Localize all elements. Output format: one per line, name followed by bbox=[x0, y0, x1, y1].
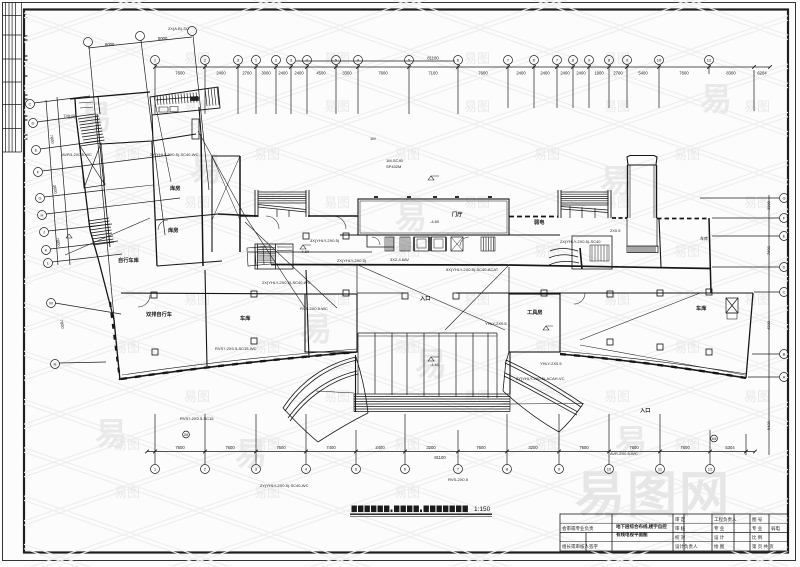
svg-text:比 例: 比 例 bbox=[752, 534, 763, 541]
svg-text:易图: 易图 bbox=[114, 485, 140, 500]
svg-text:2Y(YHLY-2X0.5)-SC40-WC: 2Y(YHLY-2X0.5)-SC40-WC bbox=[150, 152, 199, 157]
svg-text:工具房: 工具房 bbox=[527, 308, 543, 316]
svg-text:易图: 易图 bbox=[464, 292, 490, 307]
svg-text:会审或专业负责: 会审或专业负责 bbox=[562, 525, 594, 532]
svg-text:卫生间: 卫生间 bbox=[63, 113, 75, 119]
svg-text:D: D bbox=[783, 265, 786, 270]
svg-text:3300: 3300 bbox=[342, 71, 352, 76]
svg-text:8000: 8000 bbox=[105, 42, 115, 47]
svg-text:AVR-2X0.5-WC: AVR-2X0.5-WC bbox=[610, 451, 638, 456]
svg-text:易图: 易图 bbox=[394, 485, 420, 500]
svg-text:设计负责人: 设计负责人 bbox=[675, 543, 698, 550]
svg-text:YHLY-2X0.5: YHLY-2X0.5 bbox=[540, 361, 562, 366]
svg-text:3200: 3200 bbox=[766, 200, 771, 210]
svg-text:8: 8 bbox=[506, 467, 509, 472]
svg-text:7600: 7600 bbox=[579, 445, 589, 450]
svg-text:易图: 易图 bbox=[674, 147, 700, 162]
svg-text:有线电视平面图: 有线电视平面图 bbox=[616, 531, 648, 538]
svg-text:E: E bbox=[35, 148, 38, 153]
svg-text:7600: 7600 bbox=[276, 445, 286, 450]
svg-text:4: 4 bbox=[357, 58, 360, 63]
svg-text:3X(YHLY-2X0.5): 3X(YHLY-2X0.5) bbox=[310, 238, 340, 243]
svg-text:1M-SC40: 1M-SC40 bbox=[386, 158, 404, 163]
svg-text:易: 易 bbox=[235, 436, 267, 472]
svg-text:4200: 4200 bbox=[766, 320, 771, 330]
svg-text:易图网: 易图网 bbox=[575, 467, 731, 523]
svg-text:D: D bbox=[32, 121, 35, 126]
svg-text:3000: 3000 bbox=[261, 71, 271, 76]
svg-text:7600: 7600 bbox=[378, 71, 388, 76]
svg-text:2400: 2400 bbox=[216, 71, 226, 76]
svg-text:A: A bbox=[783, 375, 786, 380]
svg-text:易: 易 bbox=[80, 99, 112, 135]
svg-text:图 号: 图 号 bbox=[752, 517, 763, 523]
svg-text:8300: 8300 bbox=[726, 71, 736, 76]
svg-text:7: 7 bbox=[556, 58, 559, 63]
svg-text:易图: 易图 bbox=[254, 147, 280, 162]
svg-text:易图: 易图 bbox=[184, 389, 210, 404]
svg-text:易图: 易图 bbox=[114, 244, 140, 259]
svg-text:10: 10 bbox=[657, 58, 662, 63]
svg-text:2X(A.B)-SC: 2X(A.B)-SC bbox=[168, 26, 189, 31]
svg-text:2: 2 bbox=[275, 58, 278, 63]
svg-text:组长或审核人签字: 组长或审核人签字 bbox=[562, 543, 598, 550]
svg-text:易图: 易图 bbox=[324, 195, 350, 210]
svg-text:C: C bbox=[29, 102, 32, 107]
svg-text:易图: 易图 bbox=[324, 99, 350, 114]
svg-text:4M: 4M bbox=[712, 437, 717, 441]
svg-text:2400: 2400 bbox=[278, 71, 288, 76]
svg-text:B: B bbox=[783, 352, 786, 357]
svg-text:审 定: 审 定 bbox=[675, 516, 686, 523]
svg-text:易图: 易图 bbox=[114, 147, 140, 162]
svg-text:弱电: 弱电 bbox=[534, 218, 545, 226]
svg-text:7100: 7100 bbox=[428, 71, 438, 76]
svg-text:6: 6 bbox=[404, 467, 407, 472]
svg-text:易图: 易图 bbox=[674, 340, 700, 355]
svg-text:G: G bbox=[782, 196, 785, 201]
svg-text:2X(YHLY-2X0.5)-SC40: 2X(YHLY-2X0.5)-SC40 bbox=[560, 239, 601, 244]
svg-text:1900: 1900 bbox=[594, 71, 604, 76]
svg-text:易图: 易图 bbox=[534, 340, 560, 355]
svg-text:易图: 易图 bbox=[534, 437, 560, 452]
svg-text:2400: 2400 bbox=[540, 71, 550, 76]
svg-text:7400: 7400 bbox=[326, 445, 336, 450]
svg-text:2700: 2700 bbox=[613, 71, 623, 76]
svg-text:5400: 5400 bbox=[766, 420, 771, 430]
svg-text:AVR3-2X0.5-WC: AVR3-2X0.5-WC bbox=[62, 152, 92, 157]
svg-text:易: 易 bbox=[95, 416, 127, 452]
svg-text:H: H bbox=[41, 213, 44, 218]
svg-text:7600: 7600 bbox=[679, 71, 689, 76]
svg-text:3X2-4.6AV: 3X2-4.6AV bbox=[390, 257, 409, 262]
svg-text:2700: 2700 bbox=[242, 71, 252, 76]
svg-text:2M: 2M bbox=[184, 433, 189, 437]
svg-text:车库: 车库 bbox=[700, 235, 708, 241]
svg-text:2X(YHLY-2X0.5)-SC40-WC: 2X(YHLY-2X0.5)-SC40-WC bbox=[262, 280, 311, 285]
svg-text:-4.60: -4.60 bbox=[430, 362, 440, 367]
svg-text:7800: 7800 bbox=[49, 134, 56, 144]
svg-text:2400: 2400 bbox=[294, 71, 304, 76]
svg-text:RVS?-2X0.5-SC15-WC: RVS?-2X0.5-SC15-WC bbox=[215, 346, 257, 351]
svg-text:弱电: 弱电 bbox=[771, 525, 780, 532]
svg-text:8000: 8000 bbox=[158, 36, 168, 41]
svg-text:1:150: 1:150 bbox=[474, 506, 491, 513]
svg-text:易图: 易图 bbox=[604, 99, 630, 114]
svg-text:J: J bbox=[43, 230, 45, 235]
svg-text:6: 6 bbox=[457, 58, 460, 63]
svg-text:E: E bbox=[783, 234, 786, 239]
svg-text:2Y(YHLY-2X0.5)-SC40-WC: 2Y(YHLY-2X0.5)-SC40-WC bbox=[260, 483, 309, 488]
svg-text:3200: 3200 bbox=[426, 445, 436, 450]
svg-text:5: 5 bbox=[408, 58, 411, 63]
svg-text:7600: 7600 bbox=[175, 445, 185, 450]
svg-text:10: 10 bbox=[607, 467, 612, 472]
svg-text:7600: 7600 bbox=[478, 71, 488, 76]
svg-text:C: C bbox=[783, 290, 786, 295]
svg-text:5304: 5304 bbox=[725, 445, 735, 450]
svg-text:2400: 2400 bbox=[560, 71, 570, 76]
svg-text:自行车库: 自行车库 bbox=[118, 256, 140, 264]
svg-text:车库: 车库 bbox=[240, 314, 251, 322]
svg-text:2400: 2400 bbox=[576, 71, 586, 76]
svg-text:2Y(YHLY-2X0.5)-ACAH-VC: 2Y(YHLY-2X0.5)-ACAH-VC bbox=[516, 376, 565, 381]
svg-text:库房: 库房 bbox=[170, 184, 180, 192]
svg-text:RVS-2X0.5: RVS-2X0.5 bbox=[448, 477, 469, 482]
svg-text:-4.80: -4.80 bbox=[300, 249, 310, 254]
svg-text:M: M bbox=[49, 301, 52, 306]
svg-text:7600: 7600 bbox=[476, 445, 486, 450]
svg-text:5X(YHLY-2X0.5)-SC40-ACAT: 5X(YHLY-2X0.5)-SC40-ACAT bbox=[446, 267, 499, 272]
svg-text:易图: 易图 bbox=[394, 437, 420, 452]
svg-text:7: 7 bbox=[507, 58, 510, 63]
svg-text:RVS?-2X0.5-SC15: RVS?-2X0.5-SC15 bbox=[180, 416, 214, 421]
svg-text:专 业: 专 业 bbox=[752, 525, 763, 532]
svg-text:审 核: 审 核 bbox=[675, 525, 686, 532]
svg-text:门厅: 门厅 bbox=[452, 210, 463, 218]
svg-text:易图: 易图 bbox=[744, 389, 770, 404]
svg-text:入口: 入口 bbox=[419, 295, 430, 302]
svg-text:SP432M: SP432M bbox=[386, 164, 401, 169]
svg-text:G: G bbox=[38, 196, 41, 201]
svg-text:易: 易 bbox=[395, 199, 427, 235]
svg-text:RVS-2X0.5-WC: RVS-2X0.5-WC bbox=[300, 306, 328, 311]
svg-text:绘 图: 绘 图 bbox=[714, 543, 725, 550]
svg-text:K: K bbox=[45, 248, 48, 253]
svg-text:库房: 库房 bbox=[168, 226, 178, 234]
svg-text:易图: 易图 bbox=[464, 51, 490, 66]
svg-text:YHLY-2X0.5: YHLY-2X0.5 bbox=[485, 321, 507, 326]
svg-text:易图: 易图 bbox=[184, 195, 210, 210]
svg-text:4500: 4500 bbox=[316, 71, 326, 76]
svg-text:地下层综合布线,楼宇自控: 地下层综合布线,楼宇自控 bbox=[616, 523, 667, 530]
svg-text:车库: 车库 bbox=[696, 304, 707, 312]
svg-text:6204: 6204 bbox=[757, 71, 767, 76]
svg-text:第 页 共 页: 第 页 共 页 bbox=[752, 543, 774, 550]
svg-text:专 业: 专 业 bbox=[714, 525, 725, 532]
svg-text:易: 易 bbox=[700, 81, 732, 117]
svg-text:易图: 易图 bbox=[324, 389, 350, 404]
svg-text:入口: 入口 bbox=[639, 407, 650, 414]
svg-text:易图: 易图 bbox=[744, 99, 770, 114]
svg-text:工程负责人: 工程负责人 bbox=[714, 516, 737, 523]
svg-text:1: 1 bbox=[154, 467, 157, 472]
svg-text:易图: 易图 bbox=[464, 195, 490, 210]
svg-text:2: 2 bbox=[204, 467, 207, 472]
svg-text:4: 4 bbox=[306, 58, 309, 63]
svg-text:2400: 2400 bbox=[516, 71, 526, 76]
svg-text:7600: 7600 bbox=[680, 445, 690, 450]
svg-text:易图: 易图 bbox=[534, 147, 560, 162]
svg-text:易图: 易图 bbox=[674, 244, 700, 259]
svg-text:7600: 7600 bbox=[175, 71, 185, 76]
svg-text:7600: 7600 bbox=[766, 245, 771, 255]
svg-text:7600: 7600 bbox=[629, 445, 639, 450]
svg-text:9: 9 bbox=[588, 58, 591, 63]
svg-text:易图: 易图 bbox=[464, 99, 490, 114]
svg-text:2400: 2400 bbox=[375, 445, 385, 450]
svg-text:81100: 81100 bbox=[434, 455, 446, 460]
svg-text:易图: 易图 bbox=[254, 340, 280, 355]
svg-text:5400: 5400 bbox=[638, 71, 648, 76]
svg-text:N: N bbox=[54, 362, 57, 367]
svg-text:3200: 3200 bbox=[528, 445, 538, 450]
svg-text:7800: 7800 bbox=[55, 237, 62, 247]
svg-text:6: 6 bbox=[533, 58, 536, 63]
svg-text:2X(YHLY-2X0.5): 2X(YHLY-2X0.5) bbox=[337, 258, 367, 263]
svg-text:7600: 7600 bbox=[225, 445, 235, 450]
svg-text:1M: 1M bbox=[370, 136, 376, 141]
svg-text:易图: 易图 bbox=[604, 292, 630, 307]
svg-text:设 计: 设 计 bbox=[714, 534, 725, 541]
svg-text:9: 9 bbox=[558, 467, 561, 472]
svg-text:2X0.5: 2X0.5 bbox=[610, 228, 621, 233]
svg-text:12: 12 bbox=[708, 467, 713, 472]
svg-text:12: 12 bbox=[707, 58, 712, 63]
svg-text:易图: 易图 bbox=[604, 389, 630, 404]
svg-text:易图: 易图 bbox=[534, 244, 560, 259]
svg-text:易图: 易图 bbox=[744, 292, 770, 307]
svg-text:81100: 81100 bbox=[427, 56, 439, 61]
svg-text:F: F bbox=[783, 216, 786, 221]
svg-text:F: F bbox=[37, 170, 40, 175]
svg-text:双排自行车: 双排自行车 bbox=[146, 310, 172, 318]
svg-text:校 对: 校 对 bbox=[675, 534, 686, 541]
svg-text:7800: 7800 bbox=[59, 319, 66, 329]
svg-text:-4.60: -4.60 bbox=[430, 219, 440, 224]
